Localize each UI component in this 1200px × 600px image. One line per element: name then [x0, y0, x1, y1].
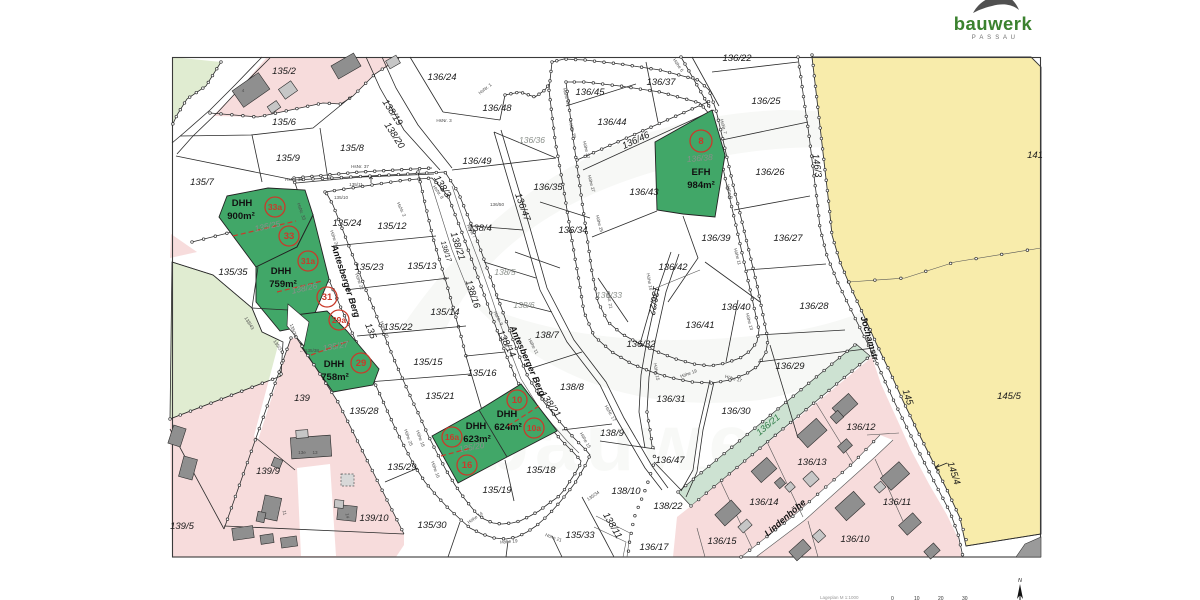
svg-text:136/29: 136/29: [775, 361, 805, 372]
svg-text:135/18: 135/18: [526, 465, 556, 476]
svg-text:16a: 16a: [445, 432, 459, 442]
svg-text:136/36: 136/36: [519, 135, 545, 145]
svg-text:136/37: 136/37: [646, 77, 676, 88]
svg-text:136/28: 136/28: [799, 301, 829, 312]
svg-text:29: 29: [356, 358, 367, 369]
svg-text:138/11: 138/11: [600, 511, 624, 541]
svg-text:135/23: 135/23: [354, 262, 384, 273]
svg-text:138/5: 138/5: [494, 267, 516, 277]
svg-text:136/34: 136/34: [558, 225, 587, 236]
svg-text:139/5: 139/5: [170, 521, 194, 532]
svg-text:135: 135: [362, 322, 378, 341]
svg-text:13e: 13e: [298, 450, 306, 455]
svg-text:0: 0: [891, 596, 894, 600]
svg-text:HsNr. 2: HsNr. 2: [396, 201, 407, 217]
svg-text:DHH: DHH: [497, 409, 518, 420]
svg-text:13: 13: [312, 450, 318, 455]
svg-text:135/34: 135/34: [586, 489, 601, 501]
svg-text:135/16: 135/16: [467, 368, 497, 379]
svg-text:136/47: 136/47: [655, 455, 685, 466]
svg-text:10: 10: [512, 395, 523, 406]
svg-text:136/48: 136/48: [482, 103, 512, 114]
svg-text:HsNr. 37: HsNr. 37: [351, 164, 369, 169]
svg-text:136/39: 136/39: [701, 233, 731, 244]
svg-text:Höhe 22: Höhe 22: [562, 88, 571, 107]
svg-text:135/9: 135/9: [276, 153, 300, 164]
svg-text:20: 20: [938, 596, 944, 600]
svg-text:135/15: 135/15: [413, 357, 443, 368]
svg-text:135/13: 135/13: [407, 261, 437, 272]
svg-text:138/6: 138/6: [513, 300, 535, 310]
svg-text:136/27: 136/27: [773, 233, 803, 244]
svg-text:Höhe 11: Höhe 11: [733, 248, 742, 266]
svg-text:Höhe 20: Höhe 20: [582, 141, 591, 160]
svg-text:10: 10: [914, 596, 920, 600]
svg-text:10a: 10a: [527, 423, 541, 433]
svg-text:Höhe 16: Höhe 16: [430, 460, 441, 478]
svg-text:136/50: 136/50: [490, 202, 504, 207]
svg-text:Höhe 29: Höhe 29: [568, 121, 577, 140]
svg-text:DHH: DHH: [271, 266, 292, 277]
svg-text:31: 31: [322, 292, 333, 303]
svg-text:136/40: 136/40: [721, 302, 751, 313]
svg-text:141: 141: [1027, 150, 1043, 161]
svg-text:8: 8: [698, 136, 703, 147]
svg-text:138/10: 138/10: [611, 486, 641, 497]
svg-text:138/16: 138/16: [463, 279, 483, 311]
svg-text:136/13: 136/13: [797, 457, 827, 468]
svg-text:136/30: 136/30: [721, 406, 751, 417]
svg-text:136/31: 136/31: [656, 394, 685, 405]
svg-text:136/25: 136/25: [751, 96, 781, 107]
svg-text:136/49: 136/49: [462, 156, 492, 167]
svg-text:Höhe 13: Höhe 13: [745, 313, 754, 332]
svg-text:135/2: 135/2: [272, 66, 296, 77]
svg-text:DHH: DHH: [324, 359, 345, 370]
svg-text:135/28: 135/28: [349, 406, 379, 417]
svg-text:146/3: 146/3: [809, 153, 823, 179]
svg-text:N: N: [1018, 578, 1022, 584]
svg-text:135/6: 135/6: [272, 117, 296, 128]
svg-text:Höhe 25: Höhe 25: [595, 215, 604, 234]
svg-text:135/10: 135/10: [334, 195, 348, 200]
svg-text:136/15: 136/15: [707, 536, 737, 547]
svg-text:33: 33: [284, 231, 295, 242]
svg-text:136/12: 136/12: [846, 422, 876, 433]
svg-text:145/5: 145/5: [997, 391, 1021, 402]
svg-text:HsNr. 3: HsNr. 3: [436, 118, 452, 123]
svg-text:HsNr. 1: HsNr. 1: [477, 82, 492, 96]
svg-text:136/45: 136/45: [575, 87, 605, 98]
svg-text:138/9: 138/9: [600, 428, 624, 439]
svg-text:984m²: 984m²: [687, 180, 714, 191]
svg-text:136/26: 136/26: [755, 167, 785, 178]
svg-text:136/43: 136/43: [629, 187, 659, 198]
svg-text:135/11: 135/11: [349, 182, 363, 187]
svg-text:900m²: 900m²: [227, 211, 254, 222]
svg-text:bauwerk: bauwerk: [954, 13, 1033, 34]
svg-text:135/7: 135/7: [190, 177, 214, 188]
svg-text:EFH: EFH: [692, 167, 711, 178]
svg-text:135/19: 135/19: [482, 485, 512, 496]
svg-text:Höhe 21: Höhe 21: [544, 532, 562, 543]
svg-text:Höhe 18: Höhe 18: [415, 429, 426, 447]
svg-text:P A S S A U: P A S S A U: [972, 35, 1016, 41]
svg-text:33a: 33a: [268, 202, 282, 212]
svg-text:139/10: 139/10: [359, 513, 389, 524]
svg-text:138/20: 138/20: [382, 120, 407, 151]
svg-text:139: 139: [294, 393, 311, 404]
svg-text:136/14: 136/14: [749, 497, 778, 508]
svg-text:Lageplan M 1:1000: Lageplan M 1:1000: [820, 595, 859, 600]
svg-text:DHH: DHH: [466, 421, 487, 432]
svg-text:135/14: 135/14: [430, 307, 459, 318]
svg-text:136/22: 136/22: [722, 53, 752, 64]
svg-text:758m²: 758m²: [321, 372, 348, 383]
svg-text:135/30: 135/30: [417, 520, 447, 531]
svg-text:Höhe 16: Höhe 16: [646, 273, 654, 291]
svg-text:DHH: DHH: [232, 198, 253, 209]
svg-text:31a: 31a: [301, 256, 315, 266]
svg-text:624m²: 624m²: [494, 422, 521, 433]
svg-text:Höhe 19: Höhe 19: [500, 538, 518, 545]
svg-text:135/29: 135/29: [387, 462, 417, 473]
svg-text:135/8: 135/8: [340, 143, 364, 154]
svg-text:16: 16: [462, 460, 473, 471]
svg-text:138/7: 138/7: [535, 330, 559, 341]
svg-text:← 135/38: ← 135/38: [299, 348, 319, 353]
svg-text:136/35: 136/35: [533, 182, 563, 193]
svg-text:4: 4: [242, 88, 245, 93]
svg-text:HsNr. 35: HsNr. 35: [285, 177, 303, 182]
svg-text:139/9: 139/9: [256, 466, 280, 477]
svg-text:135/21: 135/21: [425, 391, 454, 402]
svg-text:136/24: 136/24: [427, 72, 456, 83]
svg-text:136/44: 136/44: [597, 117, 626, 128]
svg-text:136/42: 136/42: [658, 262, 688, 273]
svg-text:138/8: 138/8: [560, 382, 584, 393]
svg-text:136/32: 136/32: [626, 339, 656, 350]
svg-text:135/33: 135/33: [565, 530, 595, 541]
svg-text:136/17: 136/17: [639, 542, 669, 553]
svg-text:30: 30: [962, 596, 968, 600]
svg-text:138/22: 138/22: [653, 501, 683, 512]
svg-text:135/24: 135/24: [332, 218, 361, 229]
svg-text:136/11: 136/11: [883, 497, 911, 508]
svg-text:136/10: 136/10: [840, 534, 870, 545]
svg-text:135/35: 135/35: [218, 267, 248, 278]
svg-text:29a: 29a: [332, 315, 346, 325]
svg-text:135/12: 135/12: [377, 221, 407, 232]
svg-text:136/41: 136/41: [685, 320, 714, 331]
